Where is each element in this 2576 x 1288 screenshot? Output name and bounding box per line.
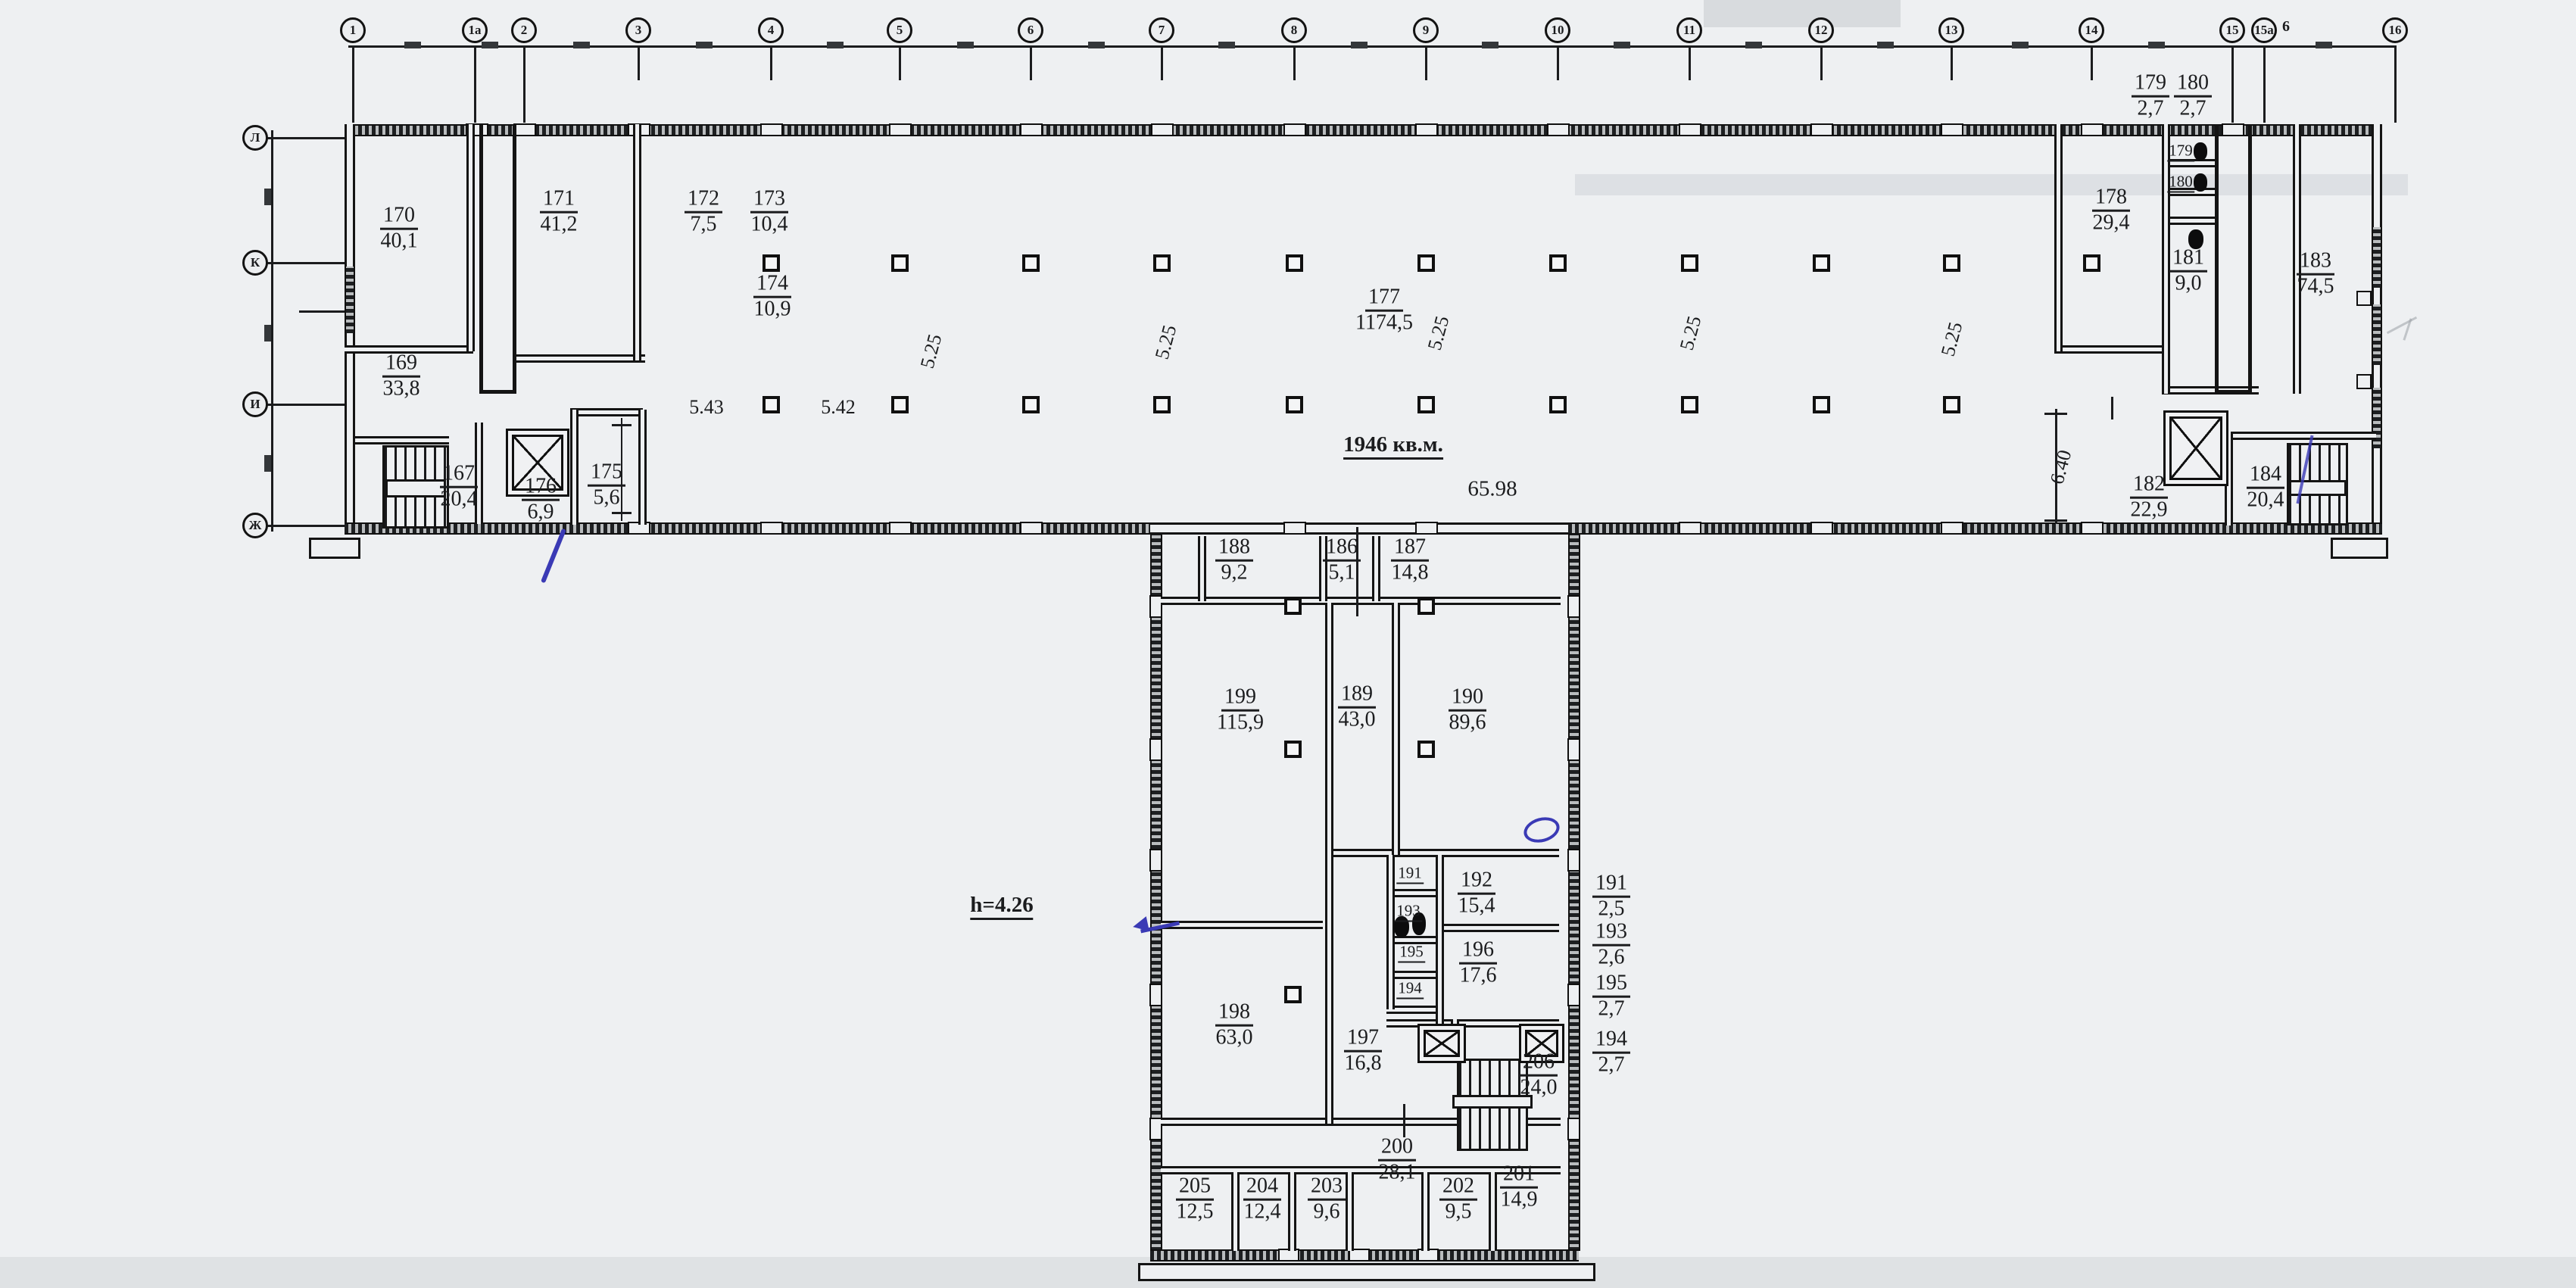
top-wall-pier	[889, 123, 912, 136]
axis-tick-line	[267, 525, 345, 527]
dimension-text: 5.25	[1424, 313, 1455, 353]
axis-marker-К: К	[242, 250, 268, 276]
dim-tick	[612, 424, 632, 426]
top-wall-pier	[1547, 123, 1570, 136]
scan-smudge	[1575, 174, 2408, 195]
room-area: 10,9	[753, 298, 791, 322]
dimension-tick	[1877, 42, 1894, 48]
column	[1284, 986, 1302, 1003]
dimension-tick	[573, 42, 590, 48]
dimension-tick	[264, 325, 271, 341]
wing-entry-step	[1138, 1263, 1595, 1281]
room-label-177: 1771174,5	[1355, 286, 1413, 335]
room-area: 89,6	[1449, 712, 1486, 735]
room-number: 167	[440, 463, 478, 488]
dimension-tick	[1218, 42, 1235, 48]
axis-marker-13: 13	[1938, 17, 1964, 43]
top-wall-pier	[1810, 123, 1833, 136]
interior-wall	[1386, 855, 1395, 1009]
top-wall-pier	[2222, 123, 2244, 136]
stairs	[1457, 1106, 1528, 1151]
room-label-189: 18943,0	[1338, 683, 1376, 732]
shaft-wall	[2215, 390, 2252, 394]
room-area: 5,6	[588, 487, 625, 510]
room-number: 190	[1449, 686, 1486, 712]
stairs	[1457, 1059, 1528, 1098]
dimension-tick	[827, 42, 844, 48]
wing-left-pier	[1149, 984, 1162, 1006]
column	[1153, 396, 1171, 413]
interior-wall	[1372, 536, 1380, 601]
interior-wall	[1436, 855, 1444, 1024]
room-tag-179: 179	[2167, 142, 2194, 162]
axis-tick-line	[267, 262, 345, 264]
room-label-173: 17310,4	[750, 188, 788, 237]
room-area: 2,7	[2174, 98, 2212, 121]
axis-drop-line	[770, 47, 772, 80]
bottom-wall-pier	[1415, 522, 1438, 535]
room-label-169: 16933,8	[382, 352, 420, 401]
interior-wall	[1392, 971, 1439, 979]
axis-marker-16: 16	[2382, 17, 2408, 43]
shaft-wall	[479, 124, 483, 394]
room-label-203: 2039,6	[1308, 1175, 1346, 1224]
column	[1417, 597, 1435, 615]
room-number: 187	[1391, 536, 1429, 562]
interior-wall	[1436, 924, 1559, 932]
interior-wall	[570, 410, 579, 525]
room-number: 184	[2247, 463, 2284, 489]
interior-wall	[1161, 921, 1323, 929]
column	[1153, 254, 1171, 272]
room-area: 6,9	[522, 501, 560, 525]
room-number: 203	[1308, 1175, 1346, 1201]
wing-left-wall	[1150, 535, 1162, 1251]
axis-marker-15а: 15а	[2251, 17, 2277, 43]
room-area: 24,0	[1520, 1077, 1558, 1100]
axis-marker-12: 12	[1808, 17, 1834, 43]
room-number: 198	[1215, 1001, 1253, 1027]
room-number: 173	[750, 188, 788, 214]
axis-drop-line	[1425, 47, 1427, 80]
elevator-shaft	[2163, 410, 2228, 486]
room-number: 175	[588, 461, 625, 487]
interior-wall	[633, 124, 641, 360]
top-wall-pier	[1151, 123, 1174, 136]
shaft-wall	[2248, 124, 2252, 394]
room-tag-180: 180	[2167, 173, 2194, 193]
bottom-wall-pier	[889, 522, 912, 535]
room-area: 20,4	[440, 488, 478, 512]
room-label-196: 19617,6	[1459, 939, 1497, 988]
room-area: 5,1	[1323, 562, 1361, 585]
legend-label-191: 1912,5	[1592, 872, 1630, 922]
dimension-text: 5.25	[1937, 320, 1968, 359]
column	[1417, 741, 1435, 758]
axis-marker-15: 15	[2219, 17, 2245, 43]
pen-arrowhead	[1131, 916, 1149, 934]
column	[1943, 254, 1960, 272]
dimension-tick	[1351, 42, 1368, 48]
floor-plan-scan: 11а2345678910111213141515а166ЛКИЖ17040,1…	[0, 0, 2576, 1288]
axis-drop-line	[1161, 47, 1163, 80]
room-area: 74,5	[2297, 276, 2334, 299]
room-tag-195: 195	[1398, 943, 1425, 963]
room-area: 33,8	[382, 378, 420, 401]
interior-wall	[1331, 849, 1559, 857]
room-number: 179	[2167, 142, 2194, 162]
room-label-192: 19215,4	[1458, 869, 1495, 918]
room-number: 180	[2174, 72, 2212, 98]
room-label-184: 18420,4	[2247, 463, 2284, 513]
room-label-181: 1819,0	[2169, 247, 2207, 296]
column	[891, 254, 909, 272]
axis-drop-line	[523, 47, 525, 123]
room-number: 195	[1592, 972, 1630, 998]
room-number: 181	[2169, 247, 2207, 273]
room-label-183: 18374,5	[2297, 250, 2334, 299]
stairs-handrail	[385, 479, 446, 497]
room-number: 179	[2132, 72, 2169, 98]
room-label-171: 17141,2	[540, 188, 578, 237]
column	[2083, 254, 2100, 272]
room-number: 199	[1221, 686, 1259, 712]
room-label-198: 19863,0	[1215, 1001, 1253, 1050]
axis-tick-line	[267, 404, 345, 406]
room-label-182: 18222,9	[2130, 473, 2168, 522]
room-number: 177	[1365, 286, 1403, 312]
room-area: 9,2	[1215, 562, 1253, 585]
bottom-wall-pier	[1941, 522, 1963, 535]
room-label-188: 1889,2	[1215, 536, 1253, 585]
top-wall-pier	[1679, 123, 1701, 136]
column	[1813, 396, 1830, 413]
dimension-text: 5.43	[689, 396, 724, 419]
room-number: 180	[2167, 173, 2194, 193]
right-wall-window	[2372, 227, 2382, 288]
wing-right-wall	[1568, 535, 1580, 1251]
room-number: 183	[2297, 250, 2334, 276]
dimension-text: 5.25	[1676, 313, 1707, 353]
legend-label-195: 1952,7	[1592, 972, 1630, 1021]
room-area: 9,5	[1439, 1201, 1477, 1224]
room-number: 202	[1439, 1175, 1477, 1201]
right-wall-pier	[2356, 374, 2372, 389]
wc-fixture	[2194, 173, 2207, 192]
axis-marker-1а: 1а	[462, 17, 488, 43]
axis-marker-10: 10	[1545, 17, 1570, 43]
shaft-wall	[479, 390, 516, 394]
column	[1286, 396, 1303, 413]
axis-marker-1: 1	[340, 17, 366, 43]
interior-wall	[1288, 1172, 1296, 1251]
axis-drop-line	[1293, 47, 1296, 80]
axis-drop-line	[1689, 47, 1691, 80]
room-label-205: 20512,5	[1176, 1175, 1214, 1224]
room-number: 194	[1396, 979, 1424, 1000]
pen-stroke	[541, 529, 566, 584]
interior-wall	[1325, 603, 1333, 1124]
room-area: 41,2	[540, 214, 578, 237]
axis-drop-line	[352, 47, 354, 123]
dimension-tick	[2148, 42, 2165, 48]
room-number: 196	[1459, 939, 1497, 965]
column	[1549, 254, 1567, 272]
room-number: 205	[1176, 1175, 1214, 1201]
room-tag-193: 193	[1395, 902, 1422, 922]
room-area: 9,6	[1308, 1201, 1346, 1224]
dimension-tick	[1614, 42, 1630, 48]
wing-right-pier	[1567, 738, 1580, 761]
axis-drop-line	[1820, 47, 1823, 80]
dimension-tick	[1482, 42, 1499, 48]
top-wall-pier	[2081, 123, 2104, 136]
room-number: 200	[1378, 1136, 1416, 1162]
dimension-text: 5.42	[821, 396, 856, 419]
dimension-tick	[264, 455, 271, 472]
room-area: 14,8	[1391, 562, 1429, 585]
room-label-186: 1865,1	[1323, 536, 1361, 585]
interior-wall	[2054, 124, 2063, 351]
room-number: 206	[1520, 1051, 1558, 1077]
axis-drop-line	[1557, 47, 1559, 80]
interior-wall	[2054, 345, 2169, 354]
room-label-204: 20412,4	[1243, 1175, 1281, 1224]
room-area: 2,7	[2132, 98, 2169, 121]
elevator-car-x	[2169, 416, 2222, 480]
dim-tick	[1403, 1104, 1405, 1137]
room-label-190: 19089,6	[1449, 686, 1486, 735]
axis-dimension-line	[348, 45, 2397, 48]
room-number: 193	[1395, 902, 1422, 922]
room-area: 40,1	[380, 230, 418, 254]
room-area: 29,4	[2092, 212, 2130, 235]
room-number: 193	[1592, 921, 1630, 947]
column	[1022, 254, 1040, 272]
axis-drop-line	[1951, 47, 1953, 80]
dimension-tick	[404, 42, 421, 48]
dim-tick	[2111, 397, 2113, 419]
interior-wall	[1392, 889, 1439, 897]
axis-marker-7: 7	[1149, 17, 1174, 43]
interior-wall	[355, 436, 449, 444]
column	[1286, 254, 1303, 272]
wing-left-pier	[1149, 738, 1162, 761]
room-number: 176	[522, 476, 560, 501]
room-area: 12,4	[1243, 1201, 1281, 1224]
room-area: 9,0	[2169, 273, 2207, 296]
axis-marker-14: 14	[2079, 17, 2104, 43]
room-label-187: 18714,8	[1391, 536, 1429, 585]
room-number: 188	[1215, 536, 1253, 562]
top-wall-pier	[1941, 123, 1963, 136]
room-area: 28,1	[1378, 1162, 1416, 1185]
legend-label-194: 1942,7	[1592, 1028, 1630, 1077]
column	[1417, 254, 1435, 272]
dimension-tick	[957, 42, 974, 48]
room-number: 189	[1338, 683, 1376, 709]
room-label-175: 1755,6	[588, 461, 625, 510]
column	[763, 396, 780, 413]
room-number: 201	[1500, 1163, 1538, 1189]
axis-stray-mark: 6	[2282, 18, 2290, 36]
room-tag-191: 191	[1396, 864, 1424, 884]
bottom-wall-pier	[2081, 522, 2104, 535]
axis-marker-9: 9	[1413, 17, 1439, 43]
axis-drop-line	[2091, 47, 2093, 80]
column	[1681, 254, 1698, 272]
bottom-wall-pier	[1020, 522, 1043, 535]
axis-drop-line	[899, 47, 901, 80]
room-number: 191	[1592, 872, 1630, 898]
room-area: 22,9	[2130, 499, 2168, 522]
room-label-176: 1766,9	[522, 476, 560, 525]
room-number: 178	[2092, 186, 2130, 212]
axis-drop-line	[2231, 47, 2234, 123]
room-area: 115,9	[1217, 712, 1264, 735]
room-area: 15,4	[1458, 895, 1495, 918]
room-area: 7,5	[685, 214, 722, 237]
dim-tick	[2044, 413, 2067, 415]
column	[1813, 254, 1830, 272]
room-label-202: 2029,5	[1439, 1175, 1477, 1224]
left-entry-porch	[309, 538, 360, 559]
interior-wall	[2222, 432, 2376, 440]
axis-marker-11: 11	[1676, 17, 1702, 43]
interior-wall	[638, 410, 647, 525]
room-label-178: 17829,4	[2092, 186, 2130, 235]
room-area: 14,9	[1500, 1189, 1538, 1212]
axis-tick-line	[267, 137, 345, 139]
wing-right-pier	[1567, 849, 1580, 872]
axis-marker-2: 2	[511, 17, 537, 43]
axis-marker-Л: Л	[242, 125, 268, 151]
shaft-wall	[2215, 124, 2219, 394]
interior-wall	[466, 124, 475, 351]
right-wall-pier	[2356, 291, 2372, 306]
room-area: 10,4	[750, 214, 788, 237]
scan-smudge	[1704, 0, 1901, 27]
dimension-tick	[1088, 42, 1105, 48]
interior-wall	[1231, 1172, 1240, 1251]
room-number: 197	[1344, 1027, 1382, 1053]
room-label-167: 16720,4	[440, 463, 478, 512]
wing-left-pier	[1149, 849, 1162, 872]
bottom-wall-pier	[1810, 522, 1833, 535]
interior-wall	[516, 354, 645, 363]
top-wall-pier	[513, 123, 536, 136]
dimension-text: 5.25	[916, 332, 947, 371]
room-label-200: 20028,1	[1378, 1136, 1416, 1185]
column	[1022, 396, 1040, 413]
top-wall-pier	[1020, 123, 1043, 136]
interior-wall	[1161, 597, 1561, 605]
room-label-180: 1802,7	[2174, 72, 2212, 121]
bottom-wall-pier	[760, 522, 783, 535]
room-area: 2,7	[1592, 998, 1630, 1021]
column	[1681, 396, 1698, 413]
room-label-170: 17040,1	[380, 204, 418, 254]
right-wall-window	[2372, 304, 2382, 365]
axis-marker-Ж: Ж	[242, 513, 268, 538]
axis-drop-line	[638, 47, 640, 80]
dimension-tick	[264, 189, 271, 205]
interior-wall	[1489, 1172, 1497, 1251]
axis-drop-line	[474, 47, 476, 123]
exterior-tick	[299, 310, 346, 313]
room-area: 63,0	[1215, 1027, 1253, 1050]
room-number: 194	[1592, 1028, 1630, 1054]
pen-scribble-circle	[1521, 813, 1563, 846]
note-text: 1946 кв.м.	[1343, 432, 1443, 460]
column	[891, 396, 909, 413]
pencil-mark	[2387, 317, 2417, 334]
dimension-tick	[1745, 42, 1762, 48]
column	[763, 254, 780, 272]
room-number: 170	[380, 204, 418, 230]
axis-dimension-line-left	[271, 130, 273, 532]
room-area: 12,5	[1176, 1201, 1214, 1224]
wing-right-pier	[1567, 1118, 1580, 1140]
interior-wall	[1346, 1172, 1354, 1251]
column	[1284, 741, 1302, 758]
axis-drop-line	[1030, 47, 1032, 80]
note-text: h=4.26	[970, 893, 1033, 920]
bottom-wall-junction	[1150, 522, 1568, 535]
dimension-text: 5.25	[1151, 323, 1182, 362]
left-wall-window	[345, 267, 355, 333]
room-area: 43,0	[1338, 709, 1376, 732]
note-text: 65.98	[1467, 477, 1517, 502]
axis-marker-3: 3	[625, 17, 651, 43]
dimension-tick	[482, 42, 498, 48]
wing-right-pier	[1567, 595, 1580, 618]
room-number: 191	[1396, 864, 1424, 884]
room-number: 169	[382, 352, 420, 378]
interior-wall	[1198, 536, 1206, 601]
wing-right-pier	[1567, 984, 1580, 1006]
axis-marker-6: 6	[1018, 17, 1043, 43]
room-label-179: 1792,7	[2132, 72, 2169, 121]
column	[1284, 597, 1302, 615]
dimension-tick	[2316, 42, 2332, 48]
room-area: 2,6	[1592, 947, 1630, 970]
room-label-174: 17410,9	[753, 273, 791, 322]
axis-marker-5: 5	[887, 17, 912, 43]
room-number: 171	[540, 188, 578, 214]
axis-marker-И: И	[242, 391, 268, 417]
dimension-text: 6.40	[2046, 448, 2077, 487]
dim-tick	[2044, 519, 2067, 522]
room-number: 182	[2130, 473, 2168, 499]
wc-fixture	[2194, 142, 2207, 161]
room-number: 186	[1323, 536, 1361, 562]
room-number: 204	[1243, 1175, 1281, 1201]
axis-marker-8: 8	[1281, 17, 1307, 43]
axis-drop-line	[2263, 47, 2266, 123]
room-number: 192	[1458, 869, 1495, 895]
room-label-199: 199115,9	[1217, 686, 1264, 735]
room-area: 2,7	[1592, 1054, 1630, 1077]
axis-marker-4: 4	[758, 17, 784, 43]
top-wall-pier	[1283, 123, 1306, 136]
bottom-wall-pier	[1283, 522, 1306, 535]
shaft-wall	[513, 124, 516, 394]
room-label-197: 19716,8	[1344, 1027, 1382, 1076]
room-number: 174	[753, 273, 791, 298]
elevator-car-x	[1424, 1030, 1460, 1057]
room-label-172: 1727,5	[685, 188, 722, 237]
